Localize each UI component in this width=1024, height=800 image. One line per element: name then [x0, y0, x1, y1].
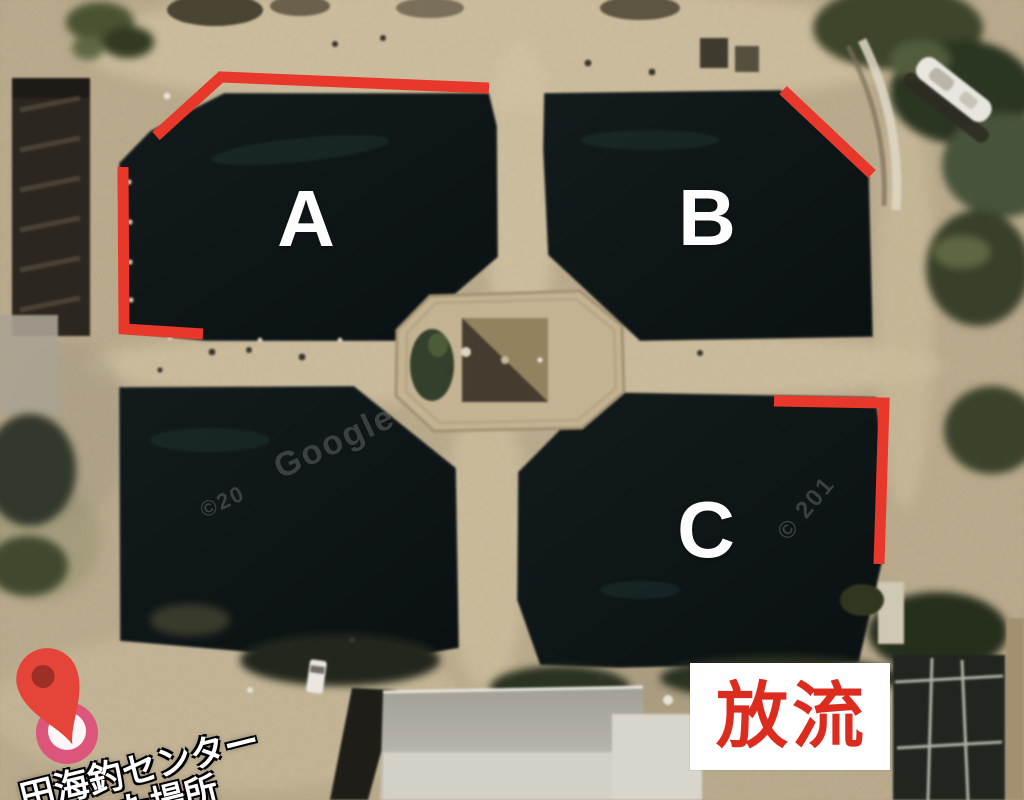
central-pavilion	[396, 291, 624, 431]
screenshot-root: A B C Google ©20 © 201 放流 田海釣センター た場所	[0, 0, 1024, 800]
pond-a-label: A	[277, 179, 335, 259]
release-sign-text: 放流	[716, 681, 868, 753]
pond-b-label: B	[678, 178, 736, 258]
pond-c-label: C	[677, 490, 735, 570]
trees-bottom	[240, 634, 440, 686]
white-building	[612, 714, 702, 800]
small-structure	[878, 582, 904, 644]
release-sign: 放流	[690, 663, 890, 770]
